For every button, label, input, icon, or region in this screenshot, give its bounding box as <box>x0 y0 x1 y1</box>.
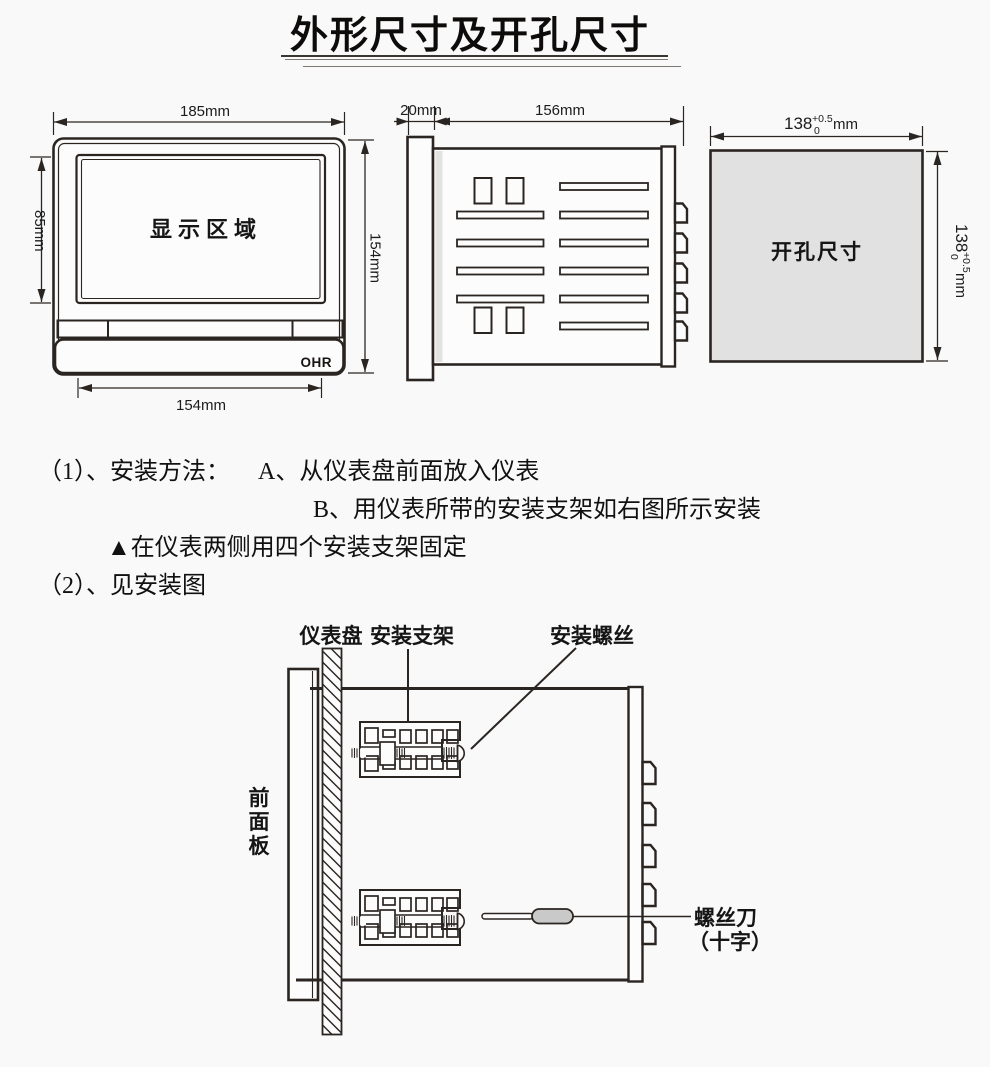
front-panel-label-char3: 板 <box>249 834 271 858</box>
title-underline-3 <box>303 66 681 67</box>
svg-text:156mm: 156mm <box>535 102 585 119</box>
svg-text:+0.5: +0.5 <box>812 113 833 125</box>
dim-display-height: 85mm <box>30 157 51 303</box>
dim-front-height: 154mm <box>348 140 384 373</box>
dim-cutout-height: 138 +0.5 0 mm <box>926 152 972 362</box>
svg-text:0: 0 <box>948 254 960 260</box>
svg-text:20mm: 20mm <box>400 102 442 119</box>
mounting-bracket-top <box>350 722 464 777</box>
bracket-label: 安装支架 <box>370 624 454 648</box>
svg-text:138: 138 <box>784 114 812 133</box>
front-panel <box>289 669 319 1000</box>
screw-leader-line <box>471 648 576 749</box>
body-shadow <box>436 151 443 362</box>
manual-page: 外形尺寸及开孔尺寸 显示区域 OHR <box>0 0 990 1067</box>
svg-text:mm: mm <box>833 116 858 133</box>
svg-text:mm: mm <box>952 273 969 298</box>
title-underline-2 <box>285 59 668 60</box>
svg-text:154mm: 154mm <box>367 233 384 283</box>
page-title: 外形尺寸及开孔尺寸 <box>0 4 940 59</box>
screwdriver <box>482 909 691 924</box>
front-panel-label-char1: 前 <box>249 786 270 810</box>
svg-text:0: 0 <box>814 125 820 137</box>
brand-logo: OHR <box>301 355 333 370</box>
cutout-drawing: 开孔尺寸 138 +0.5 0 mm <box>711 113 973 362</box>
instruction-step-b: B、用仪表所带的安装支架如右图所示安装 <box>313 489 761 524</box>
svg-text:138: 138 <box>952 224 971 252</box>
title-underline <box>281 55 668 57</box>
svg-text:+0.5: +0.5 <box>960 252 972 273</box>
screwdriver-label-line2: （十字） <box>688 930 772 954</box>
screwdriver-label-line1: 螺丝刀 <box>694 906 757 930</box>
svg-text:185mm: 185mm <box>180 103 230 120</box>
instruction-step-a: A、从仪表盘前面放入仪表 <box>258 451 539 486</box>
dim-body-depth: 156mm <box>437 102 684 146</box>
terminal-lugs <box>675 204 687 341</box>
display-area-label: 显示区域 <box>150 217 262 242</box>
dim-cutout-width: 138 +0.5 0 mm <box>711 113 923 146</box>
dimension-drawings: 显示区域 OHR 185mm <box>0 88 990 433</box>
dim-front-width: 185mm <box>54 103 345 135</box>
instruction-note: ▲在仪表两侧用四个安装支架固定 <box>107 527 467 562</box>
svg-text:154mm: 154mm <box>176 397 226 414</box>
mounting-bracket-bottom <box>350 890 464 945</box>
cutout-label: 开孔尺寸 <box>771 240 863 264</box>
dim-front-bottom-width: 154mm <box>78 378 322 414</box>
panel-label: 仪表盘 <box>299 624 363 648</box>
side-view-drawing: 20mm 156mm <box>394 102 687 380</box>
instruction-item2: （2）、见安装图 <box>38 565 206 600</box>
instrument-panel-hatched <box>323 640 342 1044</box>
instruction-item1: （1）、安装方法： <box>38 451 230 486</box>
meter-body <box>296 687 656 982</box>
screw-label: 安装螺丝 <box>550 624 634 648</box>
installation-figure: 仪表盘 安装支架 安装螺丝 前 面 板 <box>0 608 990 1067</box>
dim-bezel-depth: 20mm <box>394 102 447 135</box>
svg-text:85mm: 85mm <box>31 210 48 252</box>
front-panel-label-char2: 面 <box>249 810 270 834</box>
front-view-drawing: 显示区域 OHR 185mm <box>30 103 384 414</box>
